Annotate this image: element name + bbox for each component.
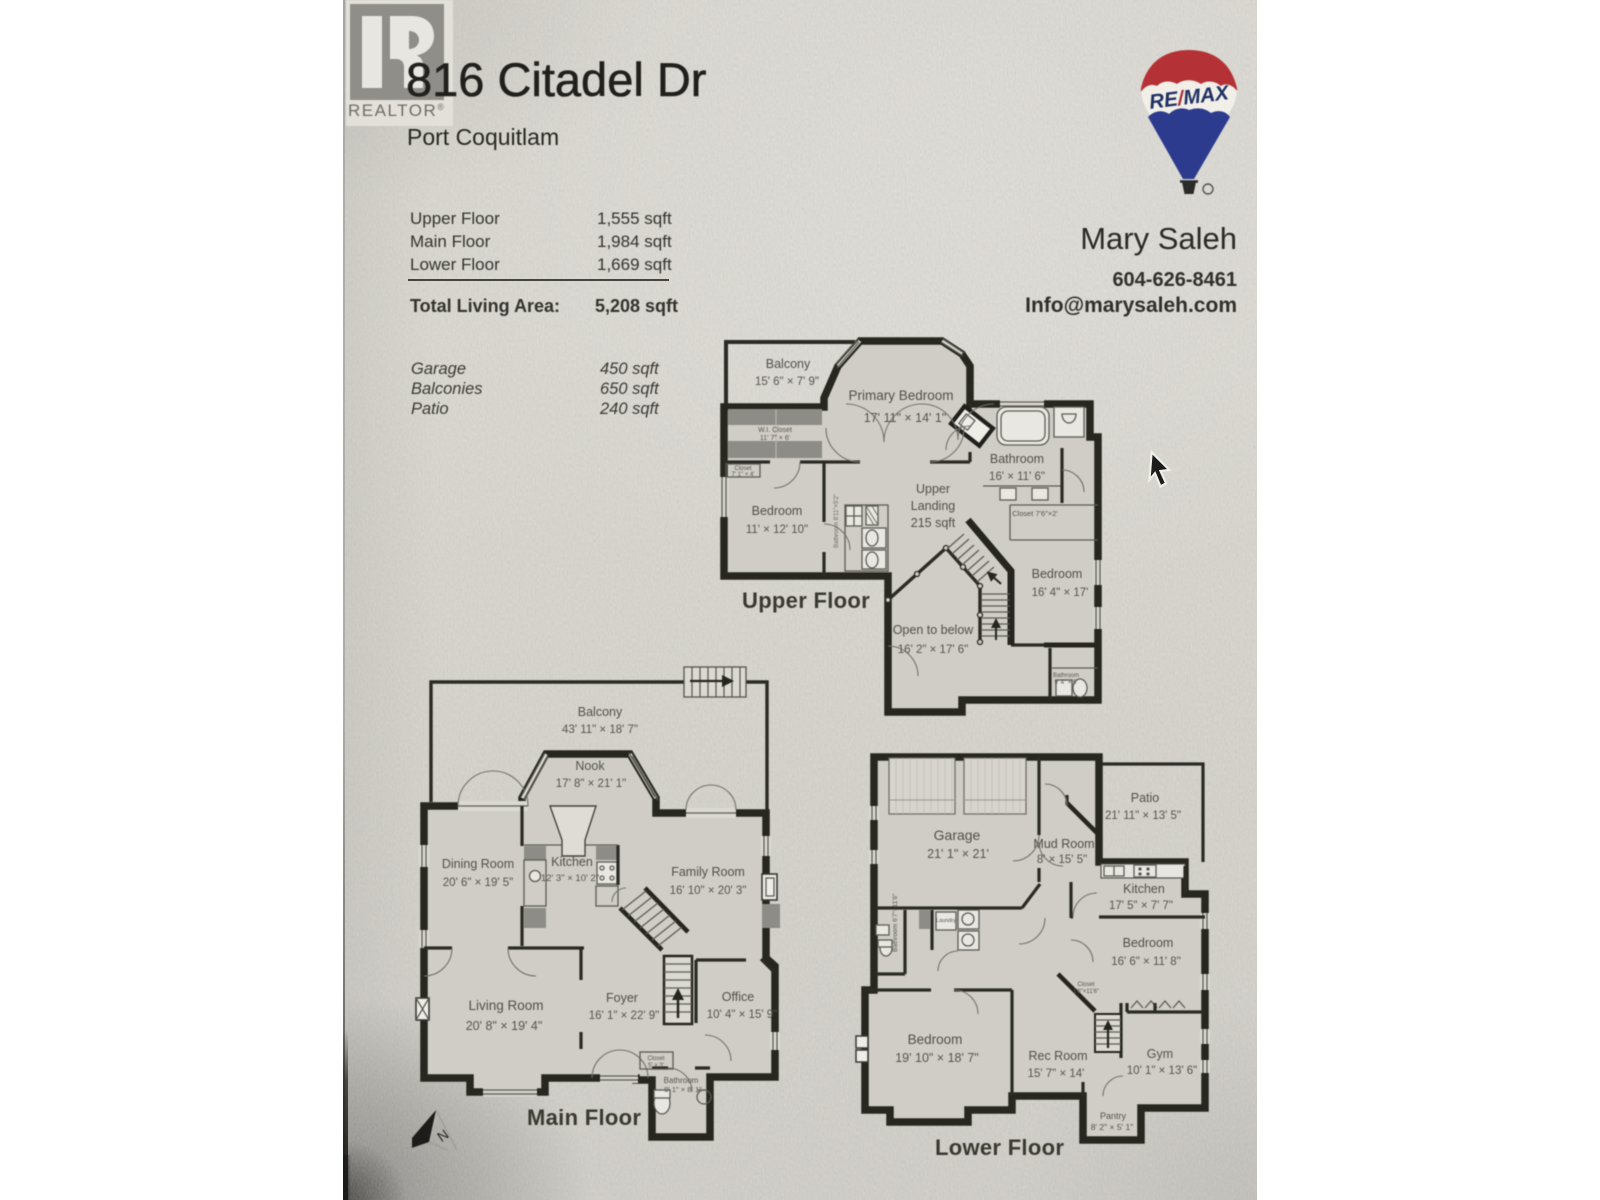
svg-text:W.I. Closet: W.I. Closet	[758, 427, 792, 434]
svg-text:Upper: Upper	[916, 482, 950, 496]
svg-text:Open to below: Open to below	[893, 623, 975, 637]
svg-text:7' 1" × 4': 7' 1" × 4'	[732, 472, 755, 478]
svg-text:Closet: Closet	[647, 1056, 664, 1062]
svg-text:Lower Floor: Lower Floor	[935, 1135, 1064, 1160]
svg-text:16' 4" × 17': 16' 4" × 17'	[1032, 587, 1089, 599]
svg-text:Pantry: Pantry	[1100, 1111, 1127, 1121]
svg-text:10' 4" × 15' 9": 10' 4" × 15' 9"	[707, 1009, 777, 1021]
svg-text:15' 7" × 14': 15' 7" × 14'	[1028, 1068, 1085, 1080]
svg-text:Patio: Patio	[1131, 791, 1160, 805]
svg-text:Closet 7'6"×2': Closet 7'6"×2'	[1012, 509, 1058, 518]
svg-text:16' 1" × 22' 9": 16' 1" × 22' 9"	[589, 1010, 659, 1022]
svg-text:215 sqft: 215 sqft	[911, 516, 956, 530]
svg-text:Laundry: Laundry	[936, 918, 956, 924]
svg-text:Bedroom: Bedroom	[1123, 936, 1174, 950]
svg-text:Kitchen: Kitchen	[551, 855, 593, 869]
svg-text:21' 11" × 13' 5": 21' 11" × 13' 5"	[1105, 810, 1181, 822]
svg-text:10' 1" × 13' 6": 10' 1" × 13' 6"	[1127, 1065, 1197, 1077]
svg-text:21' 1" × 21': 21' 1" × 21'	[927, 847, 989, 861]
svg-text:N: N	[434, 1126, 451, 1145]
svg-text:11' 7" × 6': 11' 7" × 6'	[760, 435, 790, 442]
svg-text:Balcony: Balcony	[578, 705, 623, 719]
svg-text:Closet: Closet	[1077, 982, 1094, 988]
svg-text:Dining Room: Dining Room	[442, 857, 514, 871]
svg-text:16' 10" × 20' 3": 16' 10" × 20' 3"	[670, 885, 747, 897]
svg-text:11' × 12' 10": 11' × 12' 10"	[746, 524, 808, 536]
svg-text:9' 4" × 5': 9' 4" × 5'	[1055, 680, 1078, 686]
svg-text:Bedroom: Bedroom	[752, 504, 803, 518]
svg-text:5' × 3': 5' × 3'	[648, 1063, 664, 1069]
svg-text:Upper Floor: Upper Floor	[742, 588, 870, 613]
svg-text:16' 2" × 17' 6": 16' 2" × 17' 6"	[898, 644, 968, 656]
svg-text:Bathroom 6'7"×11'6": Bathroom 6'7"×11'6"	[892, 893, 899, 952]
svg-text:12' 3" × 10' 2": 12' 3" × 10' 2"	[541, 873, 599, 884]
svg-text:Bathroom 8'11"×5'2": Bathroom 8'11"×5'2"	[834, 494, 840, 548]
svg-text:Rec Room: Rec Room	[1028, 1049, 1087, 1063]
svg-text:Primary Bedroom: Primary Bedroom	[848, 388, 953, 403]
svg-text:16' 6" × 11' 8": 16' 6" × 11' 8"	[1111, 956, 1181, 968]
svg-text:Mud Room: Mud Room	[1033, 837, 1094, 851]
svg-text:Gym: Gym	[1147, 1047, 1173, 1061]
svg-text:Living Room: Living Room	[468, 998, 543, 1013]
svg-text:17' 8" × 21' 1": 17' 8" × 21' 1"	[556, 778, 626, 790]
svg-text:8' 2" × 5' 1": 8' 2" × 5' 1"	[1091, 1122, 1134, 1132]
svg-text:17' 5" × 7' 7": 17' 5" × 7' 7"	[1109, 900, 1173, 912]
svg-text:Bedroom: Bedroom	[1032, 567, 1083, 581]
svg-text:Garage: Garage	[934, 827, 981, 843]
svg-text:Nook: Nook	[575, 759, 605, 773]
svg-text:16' × 11' 6": 16' × 11' 6"	[989, 471, 1045, 483]
svg-text:Bathroom: Bathroom	[664, 1076, 699, 1085]
svg-text:Landing: Landing	[911, 499, 956, 513]
svg-text:20' 6" × 19' 5": 20' 6" × 19' 5"	[443, 877, 513, 889]
svg-text:Office: Office	[722, 990, 754, 1004]
svg-text:1'6"×11'6": 1'6"×11'6"	[1073, 989, 1099, 995]
svg-text:Bathroom: Bathroom	[1053, 673, 1079, 679]
svg-text:Main Floor: Main Floor	[527, 1105, 641, 1130]
svg-text:Foyer: Foyer	[606, 991, 638, 1005]
svg-text:Bedroom: Bedroom	[908, 1032, 963, 1047]
svg-text:Balcony: Balcony	[766, 357, 811, 371]
svg-text:Bathroom: Bathroom	[990, 452, 1044, 466]
svg-text:43' 11" × 18' 7": 43' 11" × 18' 7"	[562, 724, 638, 736]
svg-text:17' 11" × 14' 1": 17' 11" × 14' 1"	[864, 411, 947, 425]
svg-text:Family Room: Family Room	[671, 865, 745, 879]
svg-text:20' 8" × 19' 4": 20' 8" × 19' 4"	[466, 1019, 543, 1033]
svg-text:8' × 15' 5": 8' × 15' 5"	[1037, 854, 1087, 866]
svg-text:Kitchen: Kitchen	[1123, 882, 1165, 896]
svg-text:15' 6" × 7' 9": 15' 6" × 7' 9"	[755, 376, 819, 388]
svg-text:9' 1" × 8' 1": 9' 1" × 8' 1"	[664, 1085, 702, 1094]
svg-text:19' 10" × 18' 7": 19' 10" × 18' 7"	[895, 1051, 979, 1065]
